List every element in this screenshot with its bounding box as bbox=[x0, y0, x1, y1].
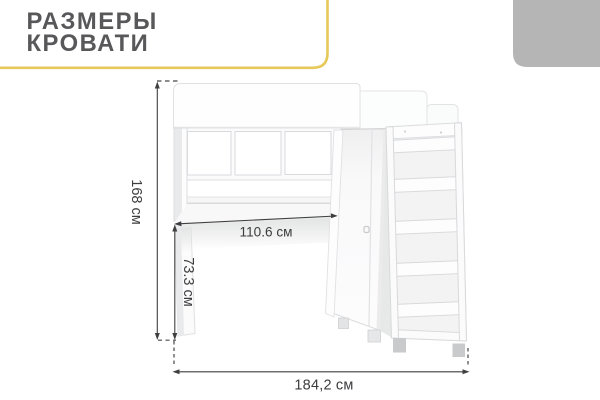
svg-text:184,2 см: 184,2 см bbox=[294, 378, 353, 394]
svg-text:168 см: 168 см bbox=[128, 179, 144, 224]
svg-text:110.6 см: 110.6 см bbox=[240, 225, 293, 240]
svg-text:73.3 см: 73.3 см bbox=[180, 257, 196, 306]
svg-text:КРОВАТИ: КРОВАТИ bbox=[27, 30, 150, 57]
